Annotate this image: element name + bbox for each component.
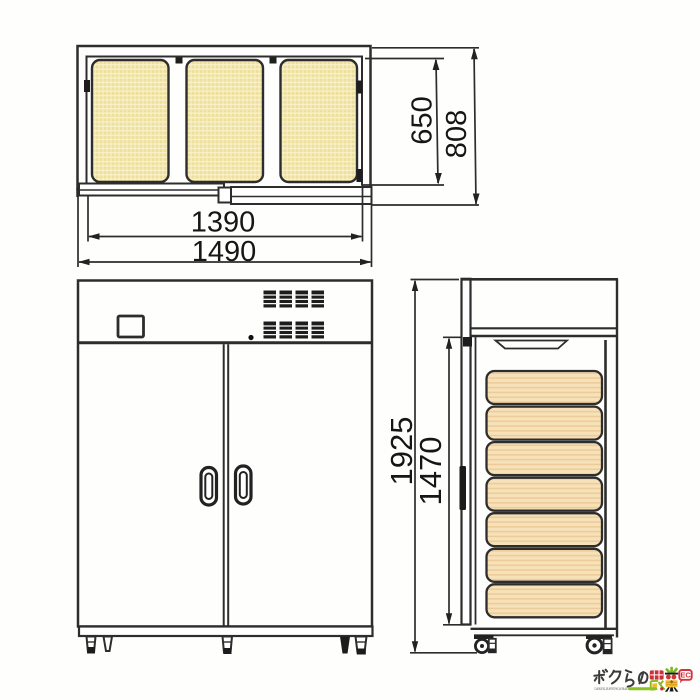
svg-text:EC: EC (680, 671, 691, 680)
svg-text:1470: 1470 (413, 437, 448, 506)
svg-text:1490: 1490 (192, 236, 257, 268)
svg-text:OUR AGRICULTURE FOR YOUR SMILE: OUR AGRICULTURE FOR YOUR SMILE (594, 687, 629, 691)
svg-text:1390: 1390 (191, 207, 256, 239)
svg-text:808: 808 (441, 110, 473, 158)
svg-text:650: 650 (406, 96, 438, 144)
